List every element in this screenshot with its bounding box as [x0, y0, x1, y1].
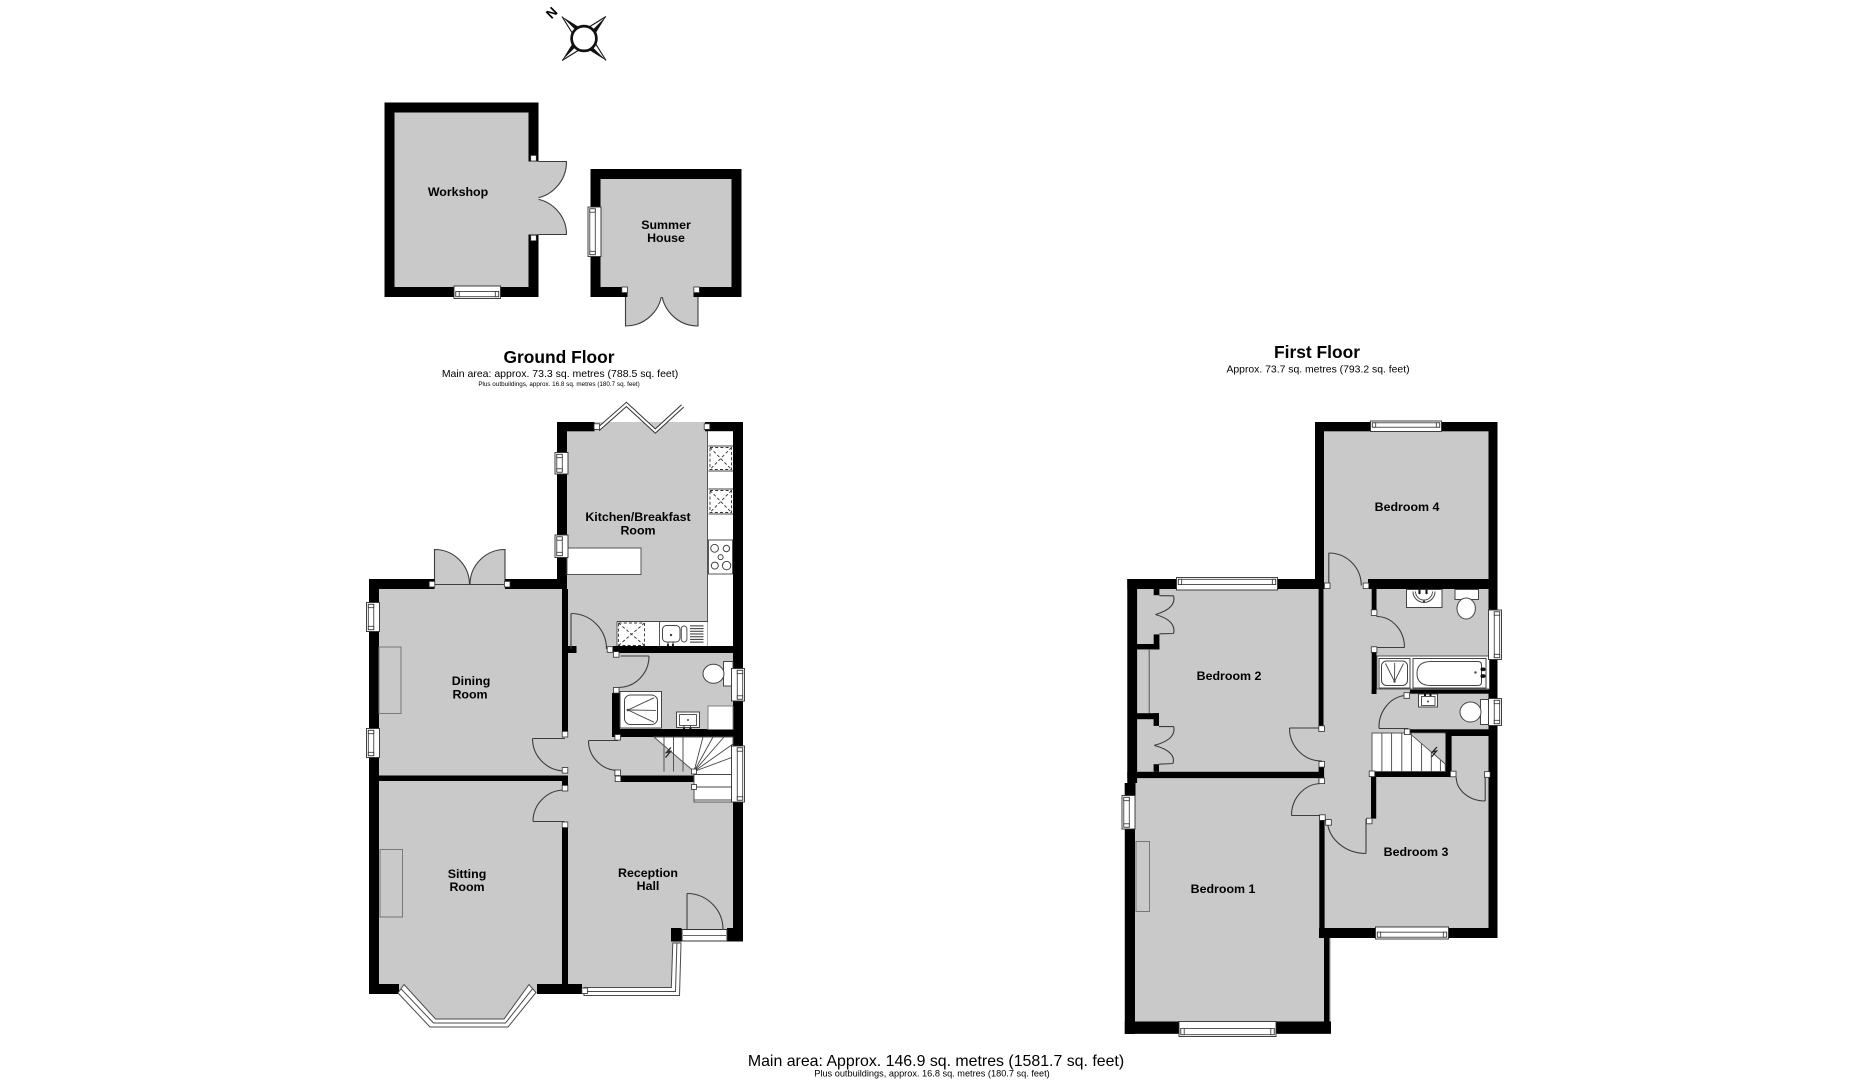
svg-text:Summer: Summer — [641, 218, 691, 232]
svg-text:Dining: Dining — [452, 674, 491, 688]
svg-text:Room: Room — [452, 688, 487, 702]
svg-text:Bedroom 2: Bedroom 2 — [1197, 669, 1262, 683]
svg-text:Workshop: Workshop — [428, 185, 489, 199]
svg-text:Plus outbuildings, approx. 16.: Plus outbuildings, approx. 16.8 sq. metr… — [814, 1068, 1049, 1078]
svg-text:Room: Room — [620, 524, 655, 538]
svg-text:Bedroom 3: Bedroom 3 — [1384, 845, 1449, 859]
svg-text:Kitchen/Breakfast: Kitchen/Breakfast — [585, 510, 690, 524]
svg-text:Main area: approx. 73.3 sq. me: Main area: approx. 73.3 sq. metres (788.… — [442, 368, 678, 380]
svg-text:First Floor: First Floor — [1274, 342, 1360, 362]
svg-text:Bedroom 4: Bedroom 4 — [1375, 500, 1440, 514]
svg-text:Room: Room — [449, 880, 484, 894]
svg-text:Approx. 73.7 sq. metres (793.2: Approx. 73.7 sq. metres (793.2 sq. feet) — [1226, 365, 1409, 376]
svg-text:Bedroom 1: Bedroom 1 — [1191, 882, 1256, 896]
svg-text:Sitting: Sitting — [448, 867, 487, 881]
svg-text:Hall: Hall — [637, 879, 660, 893]
svg-text:Plus outbuildings, approx. 16.: Plus outbuildings, approx. 16.8 sq. metr… — [478, 381, 639, 388]
svg-text:Reception: Reception — [618, 866, 678, 880]
svg-text:House: House — [647, 231, 685, 245]
svg-text:Ground Floor: Ground Floor — [503, 347, 614, 367]
